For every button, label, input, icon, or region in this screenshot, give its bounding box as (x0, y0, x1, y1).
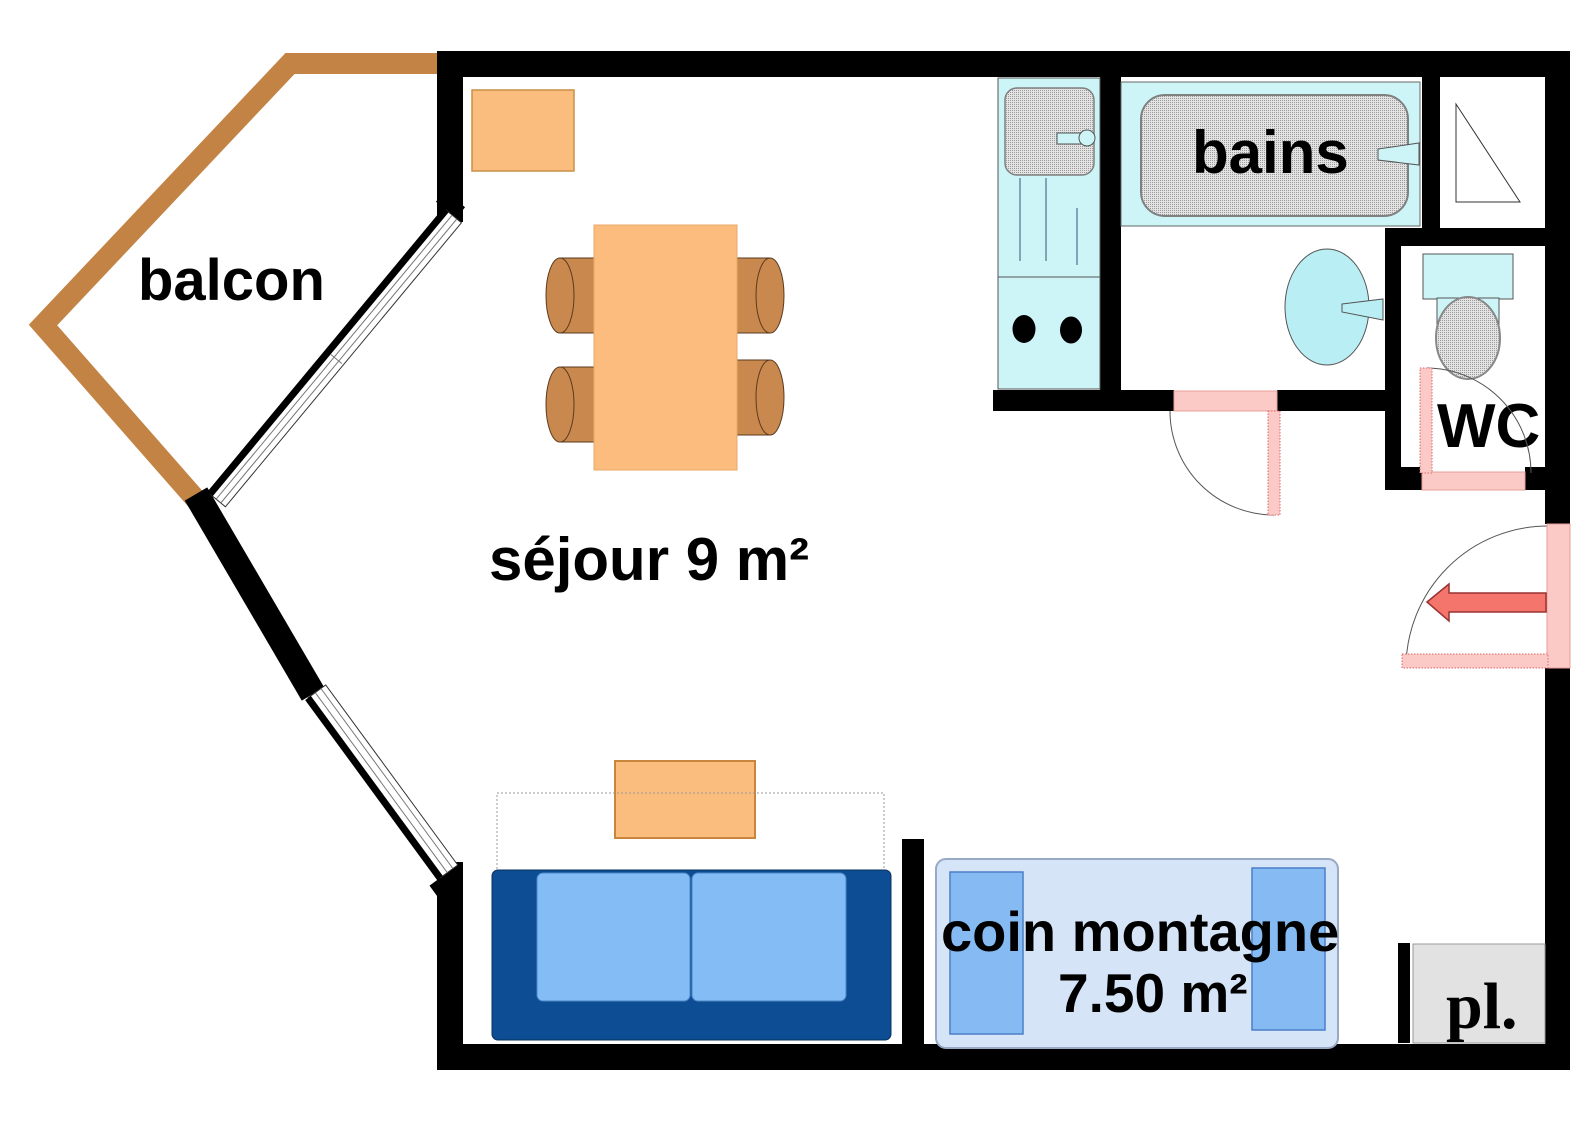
svg-text:bains: bains (1192, 119, 1349, 186)
svg-text:7.50 m²: 7.50 m² (1058, 962, 1248, 1024)
svg-text:coin montagne: coin montagne (941, 900, 1339, 963)
svg-text:WC: WC (1437, 392, 1540, 461)
svg-text:séjour 9 m²: séjour 9 m² (489, 526, 809, 593)
svg-text:balcon: balcon (138, 248, 325, 313)
svg-text:pl.: pl. (1446, 970, 1518, 1043)
